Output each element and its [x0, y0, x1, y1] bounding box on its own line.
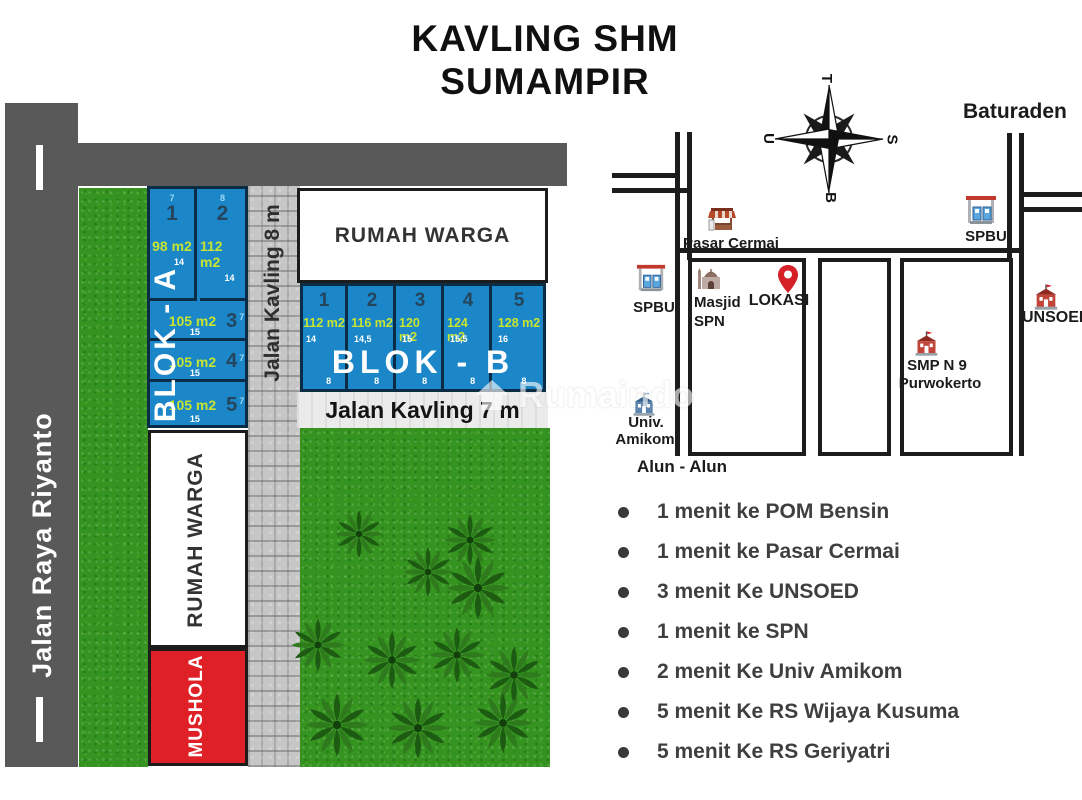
compass-letter-top: T	[818, 74, 835, 83]
grass-strip	[79, 188, 148, 767]
watermark-text: Rumaindo	[518, 374, 694, 416]
plot-number: 5	[514, 291, 525, 310]
map-label-smp-city: Purwokerto	[899, 375, 982, 392]
watermark: Rumaindo	[472, 374, 694, 416]
map-label-alun-alun: Alun - Alun	[637, 457, 727, 477]
title-line-2: SUMAMPIR	[370, 61, 720, 104]
map-label-spbu-left: SPBU	[633, 299, 675, 316]
bullet-icon	[618, 547, 629, 558]
palm-tree-icon	[362, 630, 422, 690]
gas-pump-icon	[964, 194, 998, 226]
map-label-masjid: Masjid	[694, 294, 741, 311]
poi-text: 5 menit Ke RS Wijaya Kusuma	[657, 700, 959, 724]
poi-item: 1 menit ke POM Bensin	[618, 500, 1058, 524]
poi-item: 5 menit Ke RS Wijaya Kusuma	[618, 700, 1058, 724]
market-stall-icon	[707, 205, 737, 235]
palm-tree-icon	[472, 692, 534, 754]
map-label-pasar-cermai: Pasar Cermai	[683, 235, 779, 252]
poi-text: 2 menit Ke Univ Amikom	[657, 660, 902, 684]
house-icon	[472, 376, 512, 414]
map-road	[1024, 192, 1082, 197]
plot-width-label: 7	[239, 353, 244, 363]
compass-letter-bottom: B	[822, 192, 839, 203]
poi-item: 3 menit Ke UNSOED	[618, 580, 1058, 604]
road-name-jalan-raya-riyanto: Jalan Raya Riyanto	[27, 310, 57, 780]
gas-pump-icon	[635, 263, 667, 293]
plot-number: 2	[367, 291, 378, 310]
map-label-unsoed: UNSOED	[1022, 309, 1082, 327]
plot-size: 112 m2	[303, 316, 345, 330]
plot-size: 112 m2	[200, 238, 245, 270]
kavling-poster: Jalan Raya Riyanto Jalan Kavling 8 m 7 1…	[0, 0, 1082, 800]
plot-depth-label: 15	[190, 368, 200, 378]
title-line-1: KAVLING SHM	[370, 18, 720, 61]
map-block	[818, 258, 891, 456]
poi-text: 5 menit Ke RS Geriyatri	[657, 740, 890, 764]
poi-item: 1 menit ke SPN	[618, 620, 1058, 644]
poi-text: 1 menit ke Pasar Cermai	[657, 540, 900, 564]
top-road-bar	[78, 143, 567, 186]
poi-list: 1 menit ke POM Bensin 1 menit ke Pasar C…	[618, 500, 1058, 780]
plot-width-label: 7	[239, 396, 244, 406]
blok-a-label: BLOK - A	[149, 244, 179, 444]
palm-tree-icon	[445, 555, 511, 621]
map-label-masjid-spn: SPN	[694, 313, 725, 330]
rumah-warga-top-box: RUMAH WARGA	[297, 188, 548, 283]
poi-text: 1 menit ke POM Bensin	[657, 500, 889, 524]
palm-tree-icon	[334, 509, 384, 559]
plot-depth-label: 16	[498, 334, 508, 344]
plot-number: 5	[226, 394, 237, 417]
bullet-icon	[618, 507, 629, 518]
plot-number: 4	[226, 350, 237, 373]
bullet-icon	[618, 627, 629, 638]
plot-depth-label: 15	[190, 327, 200, 337]
palm-tree-icon	[290, 617, 346, 673]
palm-tree-icon	[304, 692, 370, 758]
plot-size: 128 m2	[498, 316, 540, 330]
plot-depth-label: 14,5	[354, 334, 372, 344]
rumah-warga-top-label: RUMAH WARGA	[335, 224, 510, 248]
poi-item: 2 menit Ke Univ Amikom	[618, 660, 1058, 684]
map-label-smp: SMP N 9	[907, 357, 967, 374]
plot-depth-label: 14	[224, 273, 234, 283]
plot-number: 3	[226, 310, 237, 333]
compass-letter-right: S	[884, 134, 901, 144]
plot-number: 1	[319, 291, 330, 310]
poi-item: 1 menit ke Pasar Cermai	[618, 540, 1058, 564]
palm-tree-icon	[386, 696, 450, 760]
map-label-amikom: Amikom	[615, 431, 674, 448]
map-label-amikom-univ: Univ.	[628, 414, 664, 431]
map-label-lokasi: LOKASI	[749, 292, 809, 310]
mushola-label: MUSHOLA	[186, 646, 210, 766]
bullet-icon	[618, 587, 629, 598]
compass-letter-left: U	[760, 133, 777, 144]
road-dash	[36, 145, 43, 190]
map-label-spbu-right: SPBU	[965, 228, 1007, 245]
plot-width-label: 7	[239, 312, 244, 322]
plot-depth-label: 14	[306, 334, 316, 344]
plot-depth-label: 15	[190, 414, 200, 424]
plot-depth-label: 15	[402, 334, 412, 344]
rumah-warga-side-label: RUMAH WARGA	[184, 430, 212, 650]
plot-number: 1	[166, 203, 178, 224]
page-title: KAVLING SHM SUMAMPIR	[370, 18, 720, 103]
map-road	[1019, 133, 1024, 456]
plot-depth-label: 15,5	[450, 334, 468, 344]
map-road	[1024, 207, 1082, 212]
mosque-icon	[696, 265, 726, 291]
plot-number: 3	[415, 291, 426, 310]
plot-number: 4	[463, 291, 474, 310]
poi-text: 1 menit ke SPN	[657, 620, 809, 644]
map-road	[1007, 133, 1012, 260]
blok-a-plot-2: 8 2 112 m2 14	[200, 189, 245, 301]
bullet-icon	[618, 707, 629, 718]
map-road	[612, 173, 678, 178]
bullet-icon	[618, 747, 629, 758]
road-name-jalan-kavling-8: Jalan Kavling 8 m	[261, 188, 287, 398]
plot-size: 116 m2	[351, 316, 393, 330]
school-icon	[913, 331, 940, 357]
university-icon	[1032, 284, 1060, 311]
bullet-icon	[618, 667, 629, 678]
plot-number: 2	[217, 203, 229, 224]
poi-text: 3 menit Ke UNSOED	[657, 580, 859, 604]
location-pin-icon	[777, 264, 799, 294]
palm-tree-icon	[428, 626, 486, 684]
map-label-baturaden: Baturaden	[963, 100, 1067, 124]
poi-item: 5 menit Ke RS Geriyatri	[618, 740, 1058, 764]
map-road	[612, 188, 690, 193]
compass-rose-icon	[773, 83, 885, 195]
